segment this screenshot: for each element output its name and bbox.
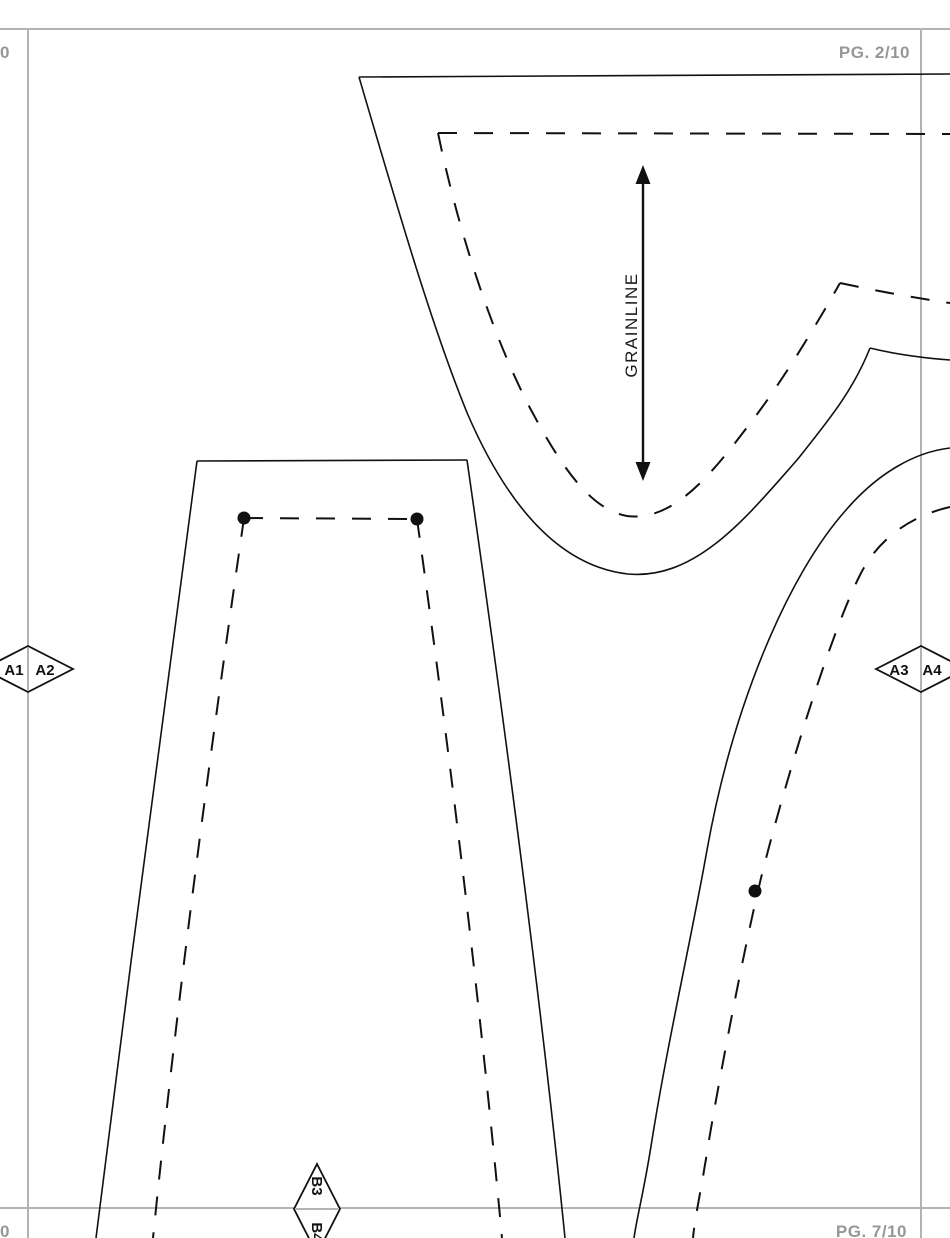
pattern-dots (238, 512, 762, 898)
pattern-cut-lines (96, 74, 950, 1238)
marker-label-a2: A2 (35, 662, 54, 679)
marker-label-b3: B3 (308, 1176, 325, 1195)
marker-label-a4: A4 (922, 662, 942, 679)
seam-dot-side (749, 885, 762, 898)
marker-label-b4: B4 (308, 1222, 325, 1238)
left-piece-right-edge (467, 460, 565, 1238)
left-piece-seam-top (244, 518, 417, 519)
grainline-marker: GRAINLINE (622, 165, 651, 481)
marker-label-a1: A1 (4, 662, 23, 679)
top-piece-top-edge (359, 74, 950, 77)
tile-grid (0, 29, 950, 1238)
right-piece-outline (634, 448, 950, 1238)
top-piece-seam-top (438, 133, 950, 134)
left-piece-top-edge (197, 460, 467, 461)
page-label-bottom-left: 10 (0, 1222, 10, 1238)
grainline-arrowhead-down-icon (636, 462, 651, 481)
page-label-bottom-right: PG. 7/10 (836, 1222, 907, 1238)
left-piece-seam-right (417, 519, 502, 1238)
marker-label-a3: A3 (889, 662, 908, 679)
top-piece-shoulder-edge (870, 348, 950, 360)
seam-dot-right (411, 513, 424, 526)
top-piece-seam-shoulder (840, 283, 950, 303)
pattern-seam-lines (153, 133, 950, 1238)
seam-dot-left (238, 512, 251, 525)
page-label-top-left: 10 (0, 43, 10, 63)
pattern-drawing: GRAINLINE A1 A2 A3 A4 B3 B4 (0, 0, 950, 1238)
alignment-diamonds (0, 646, 950, 1238)
grainline-label: GRAINLINE (622, 272, 641, 377)
page-label-top-right: PG. 2/10 (839, 43, 910, 63)
diamond-labels: A1 A2 A3 A4 B3 B4 (4, 662, 942, 1238)
top-piece-outline (359, 77, 870, 574)
left-piece-left-edge (96, 461, 197, 1238)
pattern-tile-page: GRAINLINE A1 A2 A3 A4 B3 B4 10 PG. 2/10 … (0, 0, 950, 1238)
grainline-arrowhead-up-icon (636, 165, 651, 184)
left-piece-seam-left (153, 518, 244, 1238)
right-piece-seam-curve (693, 507, 950, 1238)
